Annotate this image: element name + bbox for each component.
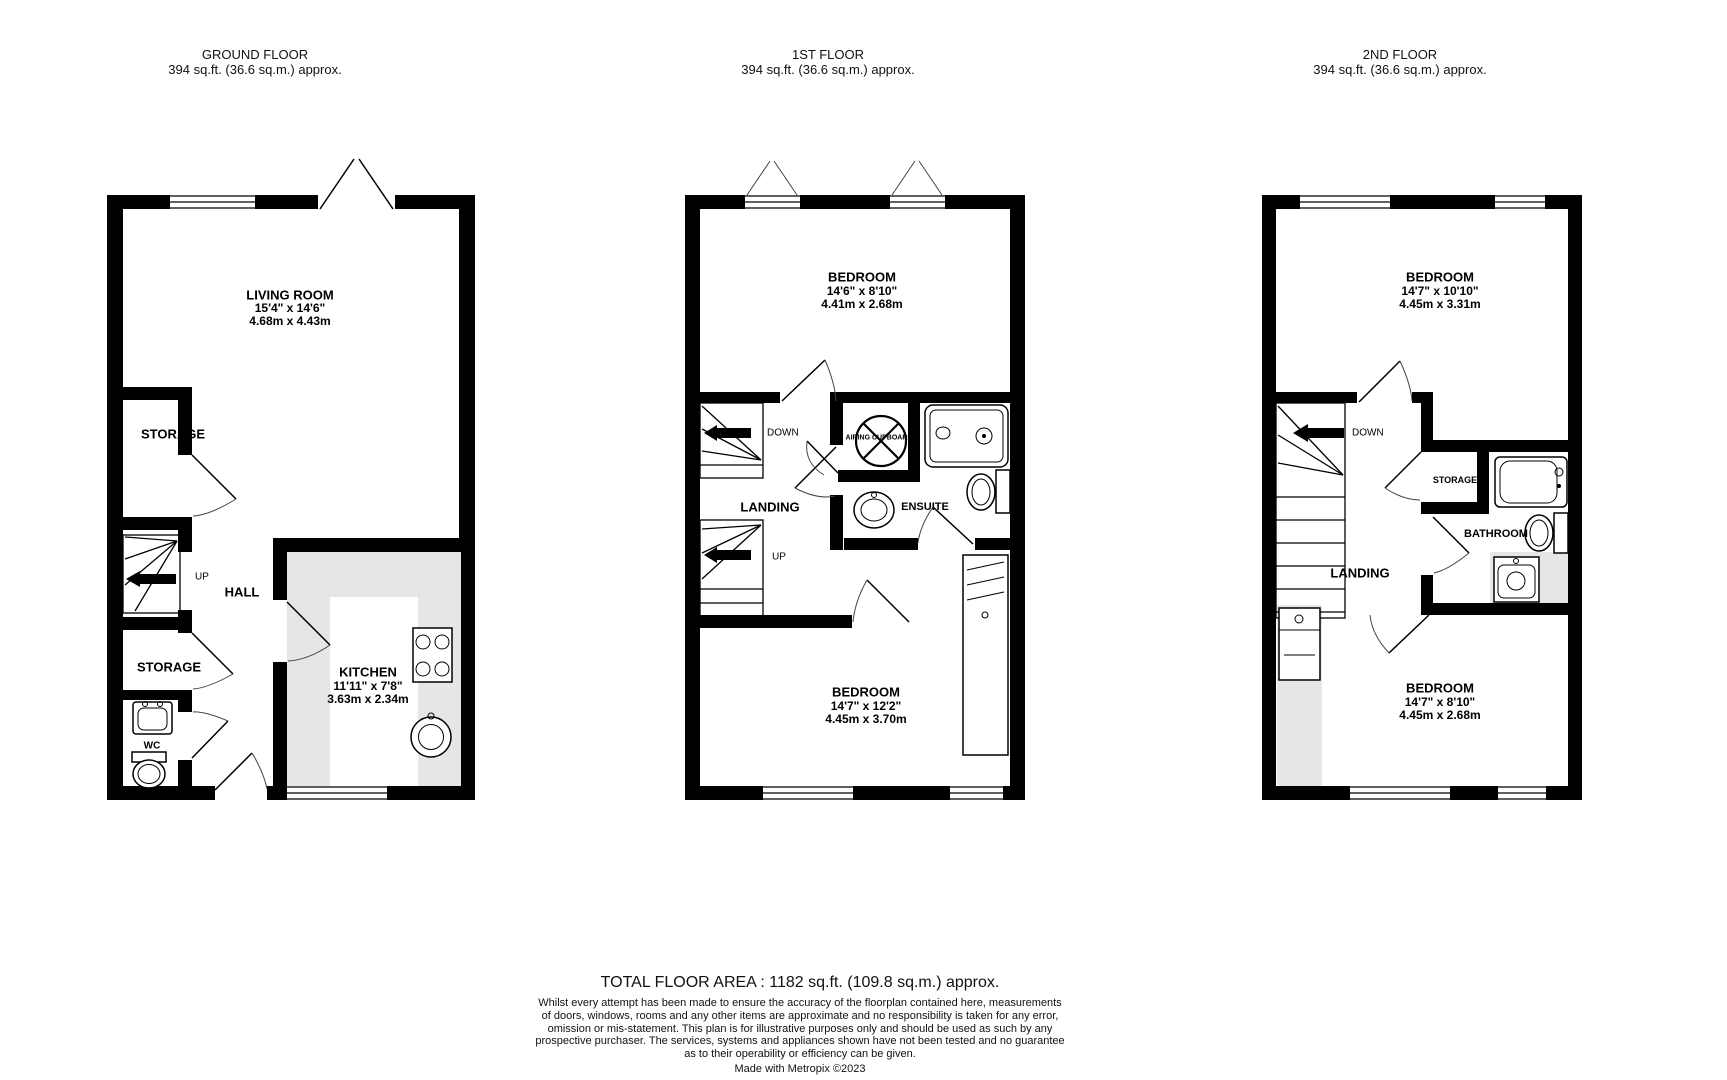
stairs-down-label: DOWN	[1352, 428, 1384, 439]
ensuite-sink-icon	[854, 492, 894, 528]
stairs-down	[700, 403, 763, 478]
floor-title-text: 1ST FLOOR	[741, 47, 914, 62]
total-floor-area: TOTAL FLOOR AREA : 1182 sq.ft. (109.8 sq…	[535, 973, 1064, 993]
bath-icon	[1495, 457, 1567, 507]
room-label-landing: LANDING	[1330, 566, 1389, 581]
first-floor-title: 1ST FLOOR 394 sq.ft. (36.6 sq.m.) approx…	[741, 47, 914, 77]
room-dims-metric: 4.41m x 2.68m	[821, 297, 902, 311]
footer: TOTAL FLOOR AREA : 1182 sq.ft. (109.8 sq…	[535, 973, 1064, 1076]
floor-area-text: 394 sq.ft. (36.6 sq.m.) approx.	[168, 62, 341, 77]
stairs-down-label: DOWN	[767, 428, 799, 439]
room-label-bedroom: BEDROOM	[832, 685, 900, 700]
floor-area-text: 394 sq.ft. (36.6 sq.m.) approx.	[1313, 62, 1486, 77]
room-dims-metric: 4.45m x 3.70m	[825, 712, 906, 726]
stairs-up	[700, 520, 763, 618]
room-label-bedroom: BEDROOM	[1406, 681, 1474, 696]
french-doors	[320, 159, 393, 209]
metropix-credit: Made with Metropix ©2023	[535, 1063, 1064, 1076]
stairs-up-label: UP	[195, 572, 209, 583]
room-dims-imperial: 14'6" x 8'10"	[827, 284, 897, 298]
disclaimer-line: of doors, windows, rooms and any other i…	[535, 1010, 1064, 1023]
casement-window-marks	[747, 161, 942, 195]
toilet-icon	[132, 752, 166, 788]
room-label-storage: STORAGE	[1433, 475, 1477, 485]
room-label-ensuite: ENSUITE	[901, 501, 949, 513]
room-dims-imperial: 11'11" x 7'8"	[333, 679, 402, 693]
room-label-hall: HALL	[225, 585, 260, 600]
room-dims-metric: 4.45m x 2.68m	[1399, 708, 1480, 722]
room-label-landing: LANDING	[740, 500, 799, 515]
room-label-wc: WC	[144, 741, 161, 752]
disclaimer-line: Whilst every attempt has been made to en…	[535, 997, 1064, 1010]
second-floor-title: 2ND FLOOR 394 sq.ft. (36.6 sq.m.) approx…	[1313, 47, 1486, 77]
room-dims-imperial: 15'4" x 14'6"	[255, 301, 325, 315]
room-dims-metric: 4.68m x 4.43m	[249, 314, 330, 328]
ground-floor-plan	[107, 145, 475, 805]
room-dims-imperial: 14'7" x 8'10"	[1405, 695, 1475, 709]
washbasin-icon	[1494, 557, 1539, 602]
room-dims-metric: 3.63m x 2.34m	[327, 692, 408, 706]
wardrobe-icon	[963, 555, 1008, 755]
room-label-bedroom: BEDROOM	[1406, 270, 1474, 285]
floor-title-text: GROUND FLOOR	[168, 47, 341, 62]
room-label-bedroom: BEDROOM	[828, 270, 896, 285]
toilet-icon	[967, 470, 1010, 513]
floorplan-page: GROUND FLOOR 394 sq.ft. (36.6 sq.m.) app…	[0, 0, 1727, 1080]
room-dims-imperial: 14'7" x 10'10"	[1401, 284, 1478, 298]
room-label-storage: STORAGE	[141, 427, 205, 442]
wc-sink-icon	[133, 702, 172, 735]
floor-title-text: 2ND FLOOR	[1313, 47, 1486, 62]
room-dims-imperial: 14'7" x 12'2"	[831, 699, 901, 713]
disclaimer-line: prospective purchaser. The services, sys…	[535, 1035, 1064, 1048]
shower-icon	[925, 405, 1008, 467]
floor-area-text: 394 sq.ft. (36.6 sq.m.) approx.	[741, 62, 914, 77]
down-arrow-icon	[1293, 424, 1344, 442]
toilet-icon	[1525, 513, 1568, 553]
hob-icon	[413, 628, 452, 682]
room-label-kitchen: KITCHEN	[339, 665, 397, 680]
disclaimer-line: omission or mis-statement. This plan is …	[535, 1023, 1064, 1036]
disclaimer-line: as to their operability or efficiency ca…	[535, 1048, 1064, 1061]
desk-icon	[1279, 608, 1320, 680]
ground-floor-title: GROUND FLOOR 394 sq.ft. (36.6 sq.m.) app…	[168, 47, 341, 77]
down-arrow-icon	[704, 425, 751, 441]
room-label-storage: STORAGE	[137, 660, 201, 675]
room-dims-metric: 4.45m x 3.31m	[1399, 297, 1480, 311]
room-label-airing-cupboard: AIRING CUPBOARD	[846, 435, 913, 442]
stairs-up-label: UP	[772, 552, 786, 563]
room-label-bathroom: BATHROOM	[1464, 528, 1528, 540]
